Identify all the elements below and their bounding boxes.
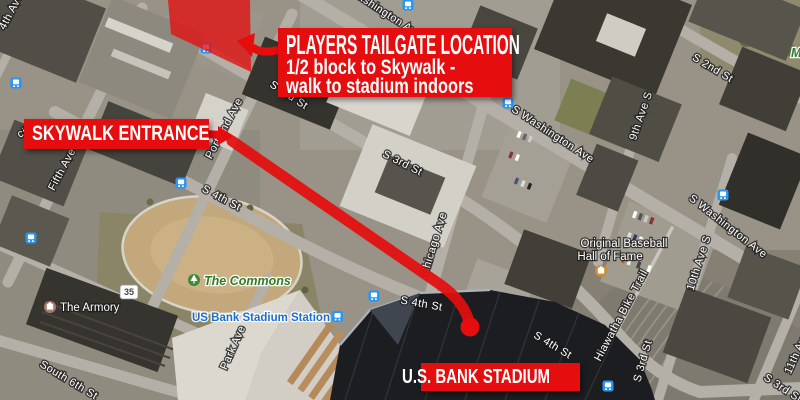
svg-text:Hall of Fame: Hall of Fame bbox=[577, 251, 642, 263]
partial-park-label: M bbox=[791, 46, 800, 60]
transit-station-icon[interactable] bbox=[603, 381, 614, 392]
route-35-shield: 35 bbox=[120, 285, 138, 299]
transit-station-icon[interactable] bbox=[718, 190, 729, 201]
transit-station-icon[interactable] bbox=[403, 0, 414, 11]
route-endpoint-dot bbox=[461, 318, 480, 337]
svg-text:US Bank Stadium Station: US Bank Stadium Station bbox=[192, 312, 330, 324]
skywalk-callout-label: SKYWALK ENTRANCE bbox=[32, 122, 260, 146]
the-commons-poi[interactable]: The Commons bbox=[188, 274, 291, 288]
us-bank-stadium-station-poi[interactable]: US Bank Stadium Station bbox=[192, 311, 343, 324]
tailgate-callout-title: PLAYERS TAILGATE LOCATION bbox=[286, 32, 512, 58]
stadium-callout: U.S. BANK STADIUM bbox=[421, 363, 580, 391]
svg-text:The Armory: The Armory bbox=[60, 302, 120, 314]
tailgate-callout-subtitle-2: walk to stadium indoors bbox=[286, 77, 512, 96]
svg-text:The Commons: The Commons bbox=[204, 274, 291, 288]
station-icon bbox=[332, 311, 343, 322]
transit-station-icon[interactable] bbox=[176, 178, 187, 189]
transit-station-icon[interactable] bbox=[369, 291, 380, 302]
transit-station-icon[interactable] bbox=[503, 98, 514, 109]
svg-text:35: 35 bbox=[124, 287, 134, 297]
stadium-callout-label: U.S. BANK STADIUM bbox=[402, 366, 599, 389]
transit-station-icon[interactable] bbox=[26, 233, 37, 244]
map-screenshot: Washington AvS 2nd StS Washington AveS W… bbox=[0, 0, 800, 400]
transit-station-icon[interactable] bbox=[11, 78, 22, 89]
skywalk-entrance-callout: SKYWALK ENTRANCE bbox=[24, 119, 209, 149]
svg-text:Original Baseball: Original Baseball bbox=[581, 238, 668, 250]
tailgate-callout: PLAYERS TAILGATE LOCATION 1/2 block to S… bbox=[278, 28, 512, 97]
